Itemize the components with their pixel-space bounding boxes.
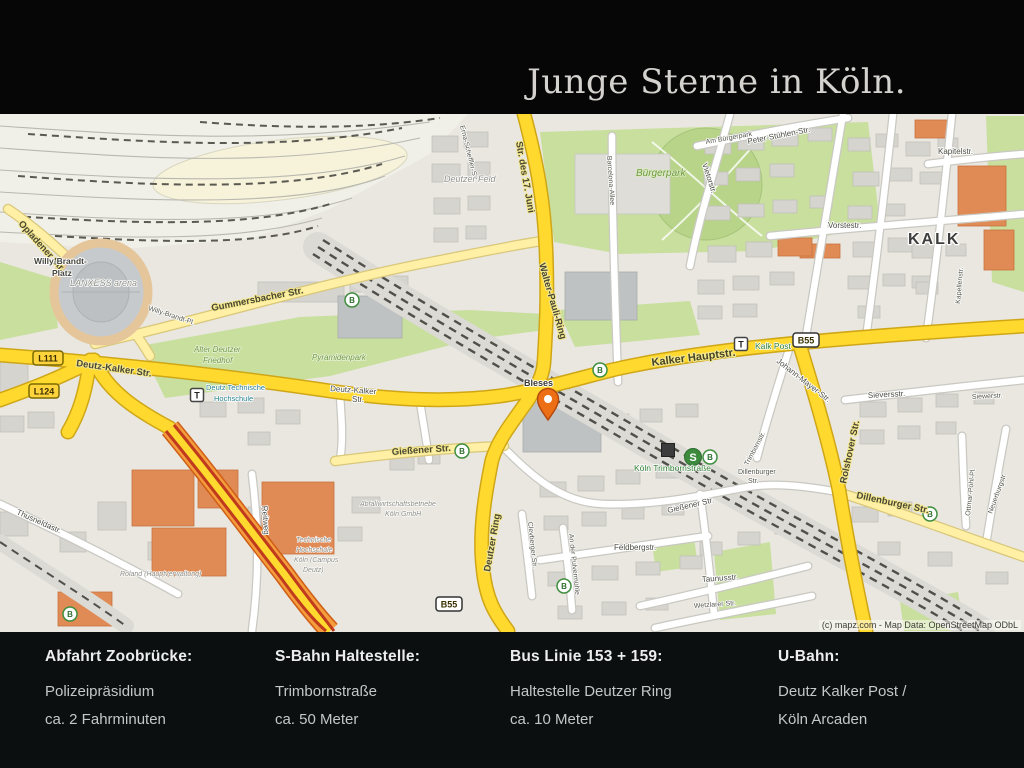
road: [340, 396, 342, 460]
badge-text: B: [707, 453, 713, 462]
info-column-zoobruecke: Abfahrt Zoobrücke: Polizeipräsidium ca. …: [45, 648, 192, 734]
map-label: Hochschule: [214, 394, 253, 403]
map-building: [432, 136, 458, 152]
map-canvas[interactable]: L111L124B55B55BBBBBBTTSBOpladener Str.Gu…: [0, 114, 1024, 632]
map-building: [565, 272, 637, 320]
map-building: [736, 168, 760, 181]
transport-info-bar: Abfahrt Zoobrücke: Polizeipräsidium ca. …: [0, 632, 1024, 768]
map-label: Dillenburger: [738, 469, 776, 476]
map-building: [676, 404, 698, 417]
map-building: [986, 572, 1008, 584]
B55-badge: B55: [793, 333, 819, 347]
map-building: [575, 154, 670, 214]
bus-badge: B: [345, 293, 359, 307]
map-label: Str.: [352, 395, 364, 404]
badge-text: B55: [441, 600, 458, 610]
map-label: Hochschule: [296, 547, 333, 554]
map-building: [888, 168, 912, 181]
map-building: [770, 164, 794, 177]
map-building: [848, 206, 872, 219]
map-building: [592, 566, 618, 580]
info-line: ca. 50 Meter: [275, 706, 420, 734]
title-bar: Junge Sterne in Köln.: [0, 0, 1024, 114]
map-building: [746, 242, 772, 257]
map-building: [898, 398, 922, 412]
map-building: [936, 394, 958, 407]
map-label: Bleses: [524, 378, 553, 388]
map-building: [920, 172, 942, 184]
station-badge: [662, 444, 675, 457]
map-building: [906, 142, 930, 156]
page: Junge Sterne in Köln. L111L124B55B55BBBB…: [0, 0, 1024, 768]
badge-text: B: [597, 366, 603, 375]
map-label: Alter Deutzer: [193, 345, 241, 354]
map-label: Deutz): [303, 567, 324, 574]
bus-badge: B: [703, 450, 717, 464]
map[interactable]: L111L124B55B55BBBBBBTTSBOpladener Str.Gu…: [0, 114, 1024, 632]
map-building: [733, 304, 757, 317]
map-building: [928, 552, 952, 566]
map-building: [152, 528, 226, 576]
info-line: ca. 10 Meter: [510, 706, 672, 734]
map-label: Platz: [52, 268, 72, 278]
map-building: [936, 422, 956, 434]
bus-badge: B: [455, 444, 469, 458]
map-building: [602, 602, 626, 615]
map-building: [848, 138, 870, 151]
map-label: Pyramidenpark: [312, 353, 367, 362]
map-label: LANXESS arena: [70, 278, 137, 288]
map-building: [636, 562, 660, 575]
map-building: [466, 226, 486, 239]
map-label: Bürgerpark: [636, 168, 686, 179]
map-building: [778, 238, 812, 256]
map-building: [860, 402, 886, 417]
badge-text: L111: [38, 354, 58, 364]
map-label: Köln GmbH: [385, 511, 422, 518]
badge-box: [662, 444, 675, 457]
info-line: Deutz Kalker Post /: [778, 678, 906, 706]
bus-badge: B: [557, 579, 571, 593]
info-heading: Abfahrt Zoobrücke:: [45, 648, 192, 666]
map-label: Deutzer Feld: [444, 174, 497, 184]
bus-badge: B: [63, 607, 77, 621]
map-attribution: (c) mapz.com - Map Data: OpenStreetMap O…: [819, 620, 1021, 630]
badge-text: T: [738, 340, 744, 350]
info-column-bus: Bus Linie 153 + 159: Haltestelle Deutzer…: [510, 648, 672, 734]
info-heading: Bus Linie 153 + 159:: [510, 648, 672, 666]
map-label: Deutz Technische: [206, 383, 265, 392]
L-badge: L111: [33, 351, 63, 365]
map-building: [898, 426, 920, 439]
info-heading: U-Bahn:: [778, 648, 906, 666]
page-title: Junge Sterne in Köln.: [527, 62, 906, 102]
map-building: [248, 432, 270, 445]
map-building: [770, 272, 794, 285]
map-building: [808, 128, 832, 141]
L-badge: L124: [29, 384, 59, 398]
info-heading: S-Bahn Haltestelle:: [275, 648, 420, 666]
map-label: Kalk Post: [755, 341, 792, 351]
info-column-ubahn: U-Bahn: Deutz Kalker Post / Köln Arcaden: [778, 648, 906, 734]
map-building: [698, 306, 722, 319]
map-building: [434, 198, 460, 214]
map-building: [853, 172, 879, 186]
map-label: Willy-Brandt-: [34, 256, 87, 266]
map-label: Kapitelstr.: [938, 147, 973, 156]
badge-text: B: [67, 610, 73, 619]
map-building: [98, 502, 126, 530]
badge-text: B: [459, 447, 465, 456]
map-building: [640, 409, 662, 422]
map-building: [708, 246, 736, 262]
map-building: [698, 280, 724, 294]
badge-text: B55: [798, 336, 815, 346]
map-building: [738, 204, 764, 217]
badge-text: B: [561, 582, 567, 591]
map-label: Technische: [296, 537, 331, 544]
badge-text: L124: [34, 387, 55, 397]
map-building: [132, 470, 194, 526]
badge-text: T: [194, 391, 200, 401]
map-label: Roland (Hauptverwaltung): [120, 571, 201, 578]
map-label: Abfallwirtschaftsbetriebe: [359, 501, 436, 508]
map-building: [915, 120, 947, 138]
info-line: Trimbornstraße: [275, 678, 420, 706]
pin-hole: [544, 395, 552, 403]
tram-badge: T: [735, 338, 748, 351]
info-line: Polizeipräsidium: [45, 678, 192, 706]
info-line: Haltestelle Deutzer Ring: [510, 678, 672, 706]
bus-badge: B: [593, 363, 607, 377]
map-building: [276, 410, 300, 424]
map-building: [984, 230, 1014, 270]
map-label: KALK: [908, 231, 960, 248]
map-label: Friedhof: [203, 356, 233, 365]
map-label: Vorstestr.: [828, 221, 861, 230]
map-building: [200, 402, 226, 417]
info-column-sbahn: S-Bahn Haltestelle: Trimbornstraße ca. 5…: [275, 648, 420, 734]
map-building: [680, 556, 702, 569]
map-building: [0, 416, 24, 432]
badge-text: B: [349, 296, 355, 305]
map-building: [738, 532, 760, 545]
map-building: [434, 228, 458, 242]
tram-badge: T: [191, 389, 204, 402]
map-label: Köln Trimbornstraße: [634, 463, 711, 473]
map-building: [883, 274, 905, 286]
map-label: Feldbergstr.: [614, 543, 656, 552]
map-building: [878, 542, 900, 555]
map-building: [582, 512, 606, 526]
info-line: Köln Arcaden: [778, 706, 906, 734]
map-building: [860, 430, 884, 444]
map-building: [338, 527, 362, 541]
map-building: [468, 196, 490, 210]
map-label: Str.: [748, 478, 759, 485]
map-label: Köln (Campus: [294, 557, 339, 564]
map-building: [28, 412, 54, 428]
map-building: [733, 276, 759, 290]
info-line: ca. 2 Fahrminuten: [45, 706, 192, 734]
B55-badge: B55: [436, 597, 462, 611]
map-building: [773, 200, 797, 213]
map-building: [578, 476, 604, 491]
